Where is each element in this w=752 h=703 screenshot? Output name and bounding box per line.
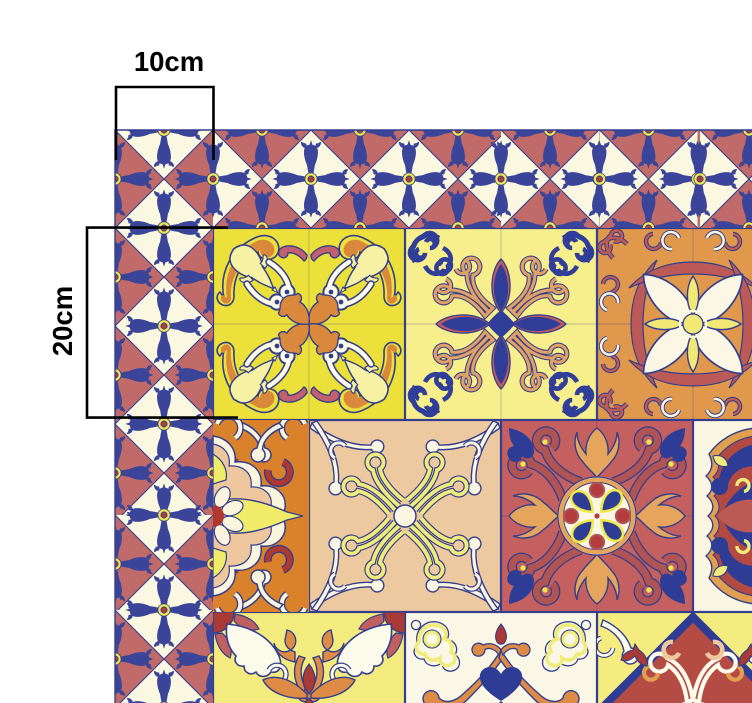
svg-text:10cm: 10cm — [134, 46, 204, 77]
svg-text:20cm: 20cm — [47, 286, 78, 356]
